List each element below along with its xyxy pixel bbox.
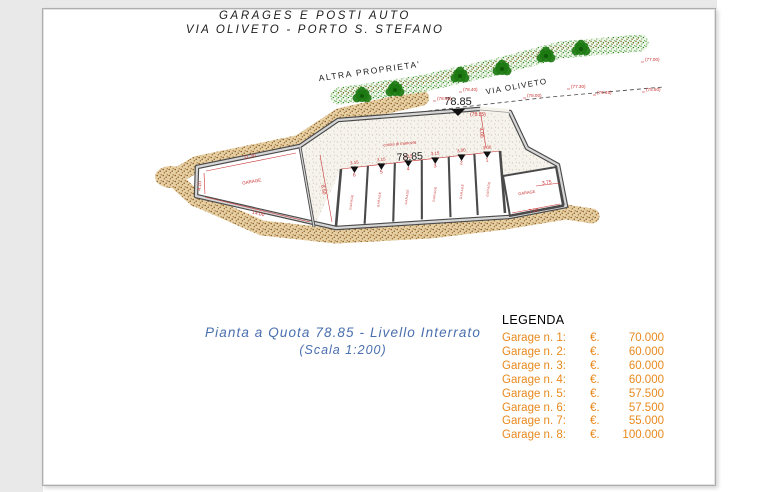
legend-row-price: 60.000 xyxy=(616,374,664,388)
road-elevation-label: (76.45) xyxy=(597,90,612,95)
legend-rows: Garage n. 1:€.70.000Garage n. 2:€.60.000… xyxy=(502,332,667,443)
road-elevation-label: (78.45) xyxy=(437,96,452,101)
stall-width-dim: 3.00 xyxy=(457,147,467,153)
legend-row: Garage n. 4:€.60.000 xyxy=(502,374,667,388)
legend-row-name: Garage n. 8: xyxy=(502,429,590,443)
road-elevation-label: (77.30) xyxy=(571,84,586,89)
road-elevation-label: (78.00) xyxy=(527,93,542,98)
legend-row-currency: €. xyxy=(590,346,616,360)
legend-row-currency: €. xyxy=(590,374,616,388)
legend-row-currency: €. xyxy=(590,360,616,374)
legend-row-currency: €. xyxy=(590,332,616,346)
legend-row-price: 57.500 xyxy=(616,402,664,416)
legend-row: Garage n. 1:€.70.000 xyxy=(502,332,667,346)
title-line-1: GARAGES E POSTI AUTO xyxy=(150,10,480,22)
legend-row-currency: €. xyxy=(590,429,616,443)
legend-row: Garage n. 5:€.57.500 xyxy=(502,388,667,402)
stall-width-dim: 3.15 xyxy=(350,159,360,165)
dim-label: 3.75 xyxy=(542,179,553,186)
entry-level-paren: (78.85) xyxy=(470,112,486,118)
driveway-level-label: 78.85 xyxy=(396,150,423,164)
legend-row-price: 60.000 xyxy=(616,360,664,374)
legend-row-price: 100.000 xyxy=(616,429,664,443)
legend-row-name: Garage n. 4: xyxy=(502,374,590,388)
legend-row-name: Garage n. 5: xyxy=(502,388,590,402)
legend-row-currency: €. xyxy=(590,402,616,416)
plan-caption: Pianta a Quota 78.85 - Livello Interrato… xyxy=(168,325,518,357)
legend-row: Garage n. 8:€.100.000 xyxy=(502,429,667,443)
legend-row-name: Garage n. 3: xyxy=(502,360,590,374)
legend-row-price: 70.000 xyxy=(616,332,664,346)
title-line-2: VIA OLIVETO - PORTO S. STEFANO xyxy=(150,24,480,36)
legend-row-currency: €. xyxy=(590,388,616,402)
caption-line-1: Pianta a Quota 78.85 - Livello Interrato xyxy=(168,325,518,340)
legend: LEGENDA Garage n. 1:€.70.000Garage n. 2:… xyxy=(502,313,667,443)
road-elevation-label: (78.40) xyxy=(463,87,478,92)
legend-row: Garage n. 3:€.60.000 xyxy=(502,360,667,374)
dim-label: 4.10 xyxy=(197,181,204,191)
legend-row: Garage n. 6:€.57.500 xyxy=(502,402,667,416)
legend-row: Garage n. 2:€.60.000 xyxy=(502,346,667,360)
legend-row-name: Garage n. 6: xyxy=(502,402,590,416)
legend-row-name: Garage n. 7: xyxy=(502,415,590,429)
stall-width-dim: 3.15 xyxy=(431,150,441,156)
drawing-title: GARAGES E POSTI AUTO VIA OLIVETO - PORTO… xyxy=(150,10,480,36)
legend-row-name: Garage n. 1: xyxy=(502,332,590,346)
legend-row-currency: €. xyxy=(590,415,616,429)
stall-width-dim: 3.00 xyxy=(482,144,492,150)
legend-row: Garage n. 7:€.55.000 xyxy=(502,415,667,429)
legend-row-price: 60.000 xyxy=(616,346,664,360)
stall-width-dim: 3.15 xyxy=(377,156,387,162)
legend-title: LEGENDA xyxy=(502,313,667,327)
legend-row-price: 57.500 xyxy=(616,388,664,402)
legend-row-price: 55.000 xyxy=(616,415,664,429)
caption-scale: (Scala 1:200) xyxy=(168,343,518,357)
legend-row-name: Garage n. 2: xyxy=(502,346,590,360)
road-elevation-label: (77.00) xyxy=(645,57,660,62)
road-elevation-label: (75.50) xyxy=(646,87,661,92)
